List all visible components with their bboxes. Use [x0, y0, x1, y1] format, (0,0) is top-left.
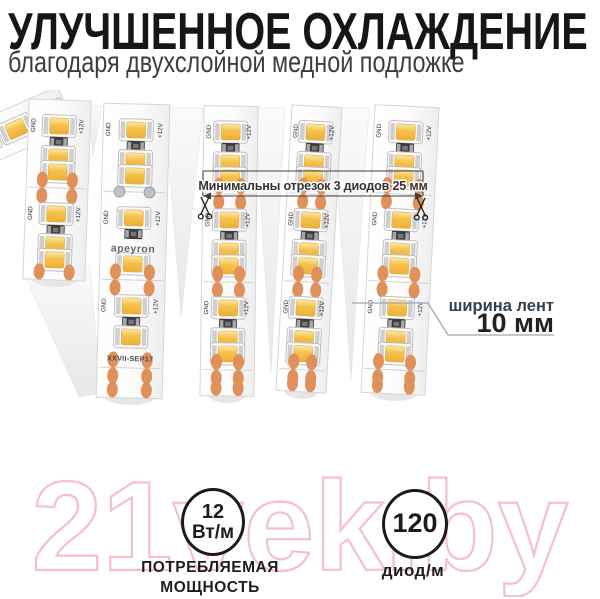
led-chip	[212, 209, 246, 231]
led-strip-run: GND+12VGND+12VGND+12VapeyronXXVII-SEP17	[96, 103, 170, 406]
strip-batch-text: XXVII-SEP17	[107, 353, 154, 363]
plus12v-label: +12V	[328, 125, 336, 141]
plus12v-label: +12V	[318, 300, 326, 316]
solder-joint	[144, 187, 155, 198]
density-badge-circle: 120	[382, 489, 448, 559]
plus12v-label: +12V	[155, 210, 162, 226]
gnd-label: GND	[30, 118, 37, 133]
led-chip	[214, 121, 248, 143]
power-badge-circle: 12 Вт/м	[181, 488, 245, 556]
led-strip-run: GND+12VGND+12VGND+12V	[361, 105, 439, 403]
plus12v-label: +12V	[157, 122, 164, 138]
power-badge-caption: ПОТРЕБЛЯЕМАЯ МОЩНОСТЬ	[110, 558, 310, 599]
width-callout-value: 10 мм	[477, 308, 554, 338]
led-strip-photo: GND+12VGND+12VGND+12VGND+12VGND+12Vapeyr…	[0, 90, 600, 475]
led-chip	[113, 326, 148, 349]
plus12v-label: +12V	[323, 213, 331, 229]
led-chip	[114, 295, 149, 318]
led-chip	[211, 297, 245, 319]
density-value: 120	[392, 510, 437, 538]
gnd-label: GND	[282, 299, 290, 314]
cut-dimension-label: Минимальны отрезок 3 диодов 25 мм	[198, 179, 427, 193]
density-badge-caption: диод/м	[333, 561, 493, 581]
page-subtitle: благодаря двухслойной медной подложке	[8, 46, 464, 80]
led-chip	[119, 119, 154, 142]
led-strip-run: GND+12VGND+12VGND+12V	[276, 105, 342, 400]
power-unit: Вт/м	[192, 523, 234, 542]
gnd-label: GND	[367, 299, 375, 314]
gnd-label: GND	[103, 210, 110, 224]
plus12v-label: +12V	[425, 125, 433, 141]
plus12v-label: +12V	[75, 206, 83, 222]
plus12v-label: +12V	[152, 298, 159, 314]
gnd-label: GND	[203, 300, 210, 314]
led-chip	[380, 296, 415, 320]
plus12v-label: +12V	[78, 119, 86, 135]
gnd-label: GND	[27, 206, 34, 221]
gnd-label: GND	[371, 211, 379, 226]
density-badge: 120	[382, 489, 448, 559]
gnd-label: GND	[292, 124, 300, 139]
led-strip-run: GND+12VGND+12VGND+12V	[200, 106, 258, 404]
gnd-label: GND	[375, 123, 383, 138]
power-caption-line1: ПОТРЕБЛЯЕМАЯ	[141, 559, 279, 576]
power-badge: 12 Вт/м	[181, 488, 245, 556]
strip-brand-text: apeyron	[111, 242, 156, 255]
plus12v-label: +12V	[246, 124, 253, 140]
led-chip	[118, 165, 153, 188]
led-strip-run: GND+12VGND+12V	[23, 99, 91, 288]
gnd-label: GND	[100, 298, 107, 312]
led-chip	[42, 114, 77, 137]
gnd-label: GND	[287, 211, 295, 226]
led-chip	[117, 207, 152, 230]
gnd-label: GND	[206, 124, 213, 138]
power-caption-line2: МОЩНОСТЬ	[160, 579, 259, 596]
led-chip	[384, 208, 419, 232]
plus12v-label: +12V	[243, 300, 250, 316]
gnd-label: GND	[105, 122, 112, 136]
resistor-chip	[124, 229, 142, 239]
plus12v-label: +12V	[244, 212, 251, 228]
led-chip	[39, 202, 74, 225]
solder-joint	[114, 186, 125, 197]
led-chip	[388, 120, 423, 144]
power-value: 12	[202, 502, 224, 522]
